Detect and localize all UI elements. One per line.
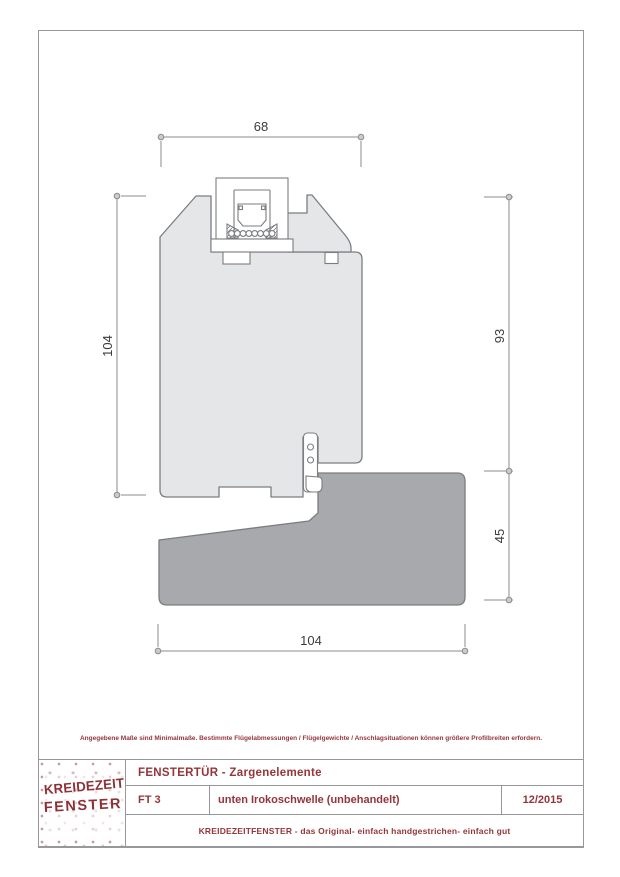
title-block-tagline: KREIDEZEITFENSTER - das Original- einfac… <box>126 815 583 846</box>
brand-logo-stamp: KREIDEZEIT FENSTER <box>43 774 123 834</box>
dim-label-top: 68 <box>254 119 268 134</box>
datasheet-page: { "note": "Angegebene Maße sind Minimalm… <box>0 0 620 877</box>
dim-label-bottom: 104 <box>300 633 322 648</box>
insert-assembly <box>211 178 293 264</box>
profile-drawing: 68 104 93 45 104 <box>0 0 620 720</box>
brand-logo-line2: FENSTER <box>43 797 124 816</box>
title-block-row: FT 3 unten Irokoschwelle (unbehandelt) 1… <box>126 786 583 815</box>
dim-label-left: 104 <box>100 335 115 357</box>
insert-notch <box>223 252 250 264</box>
drawing-code: FT 3 <box>126 786 210 814</box>
title-block: FENSTERTÜR - Zargenelemente FT 3 unten I… <box>125 759 584 847</box>
dim-label-right-lower: 45 <box>492 529 507 543</box>
title-block-title: FENSTERTÜR - Zargenelemente <box>126 760 583 786</box>
drawing-date: 12/2015 <box>502 786 583 814</box>
tolerance-note: Angegebene Maße sind Minimalmaße. Bestim… <box>40 735 582 742</box>
drawing-description: unten Irokoschwelle (unbehandelt) <box>210 786 502 814</box>
insert-flange <box>211 239 293 252</box>
dim-top-68 <box>158 134 364 167</box>
groove-notch <box>325 253 338 264</box>
dim-left-104 <box>114 193 146 498</box>
brand-logo: KREIDEZEIT FENSTER <box>38 759 126 847</box>
brand-logo-line1: KREIDEZEIT <box>43 777 122 797</box>
dim-label-right-upper: 93 <box>492 329 507 343</box>
frame-profile-slant <box>287 195 351 252</box>
